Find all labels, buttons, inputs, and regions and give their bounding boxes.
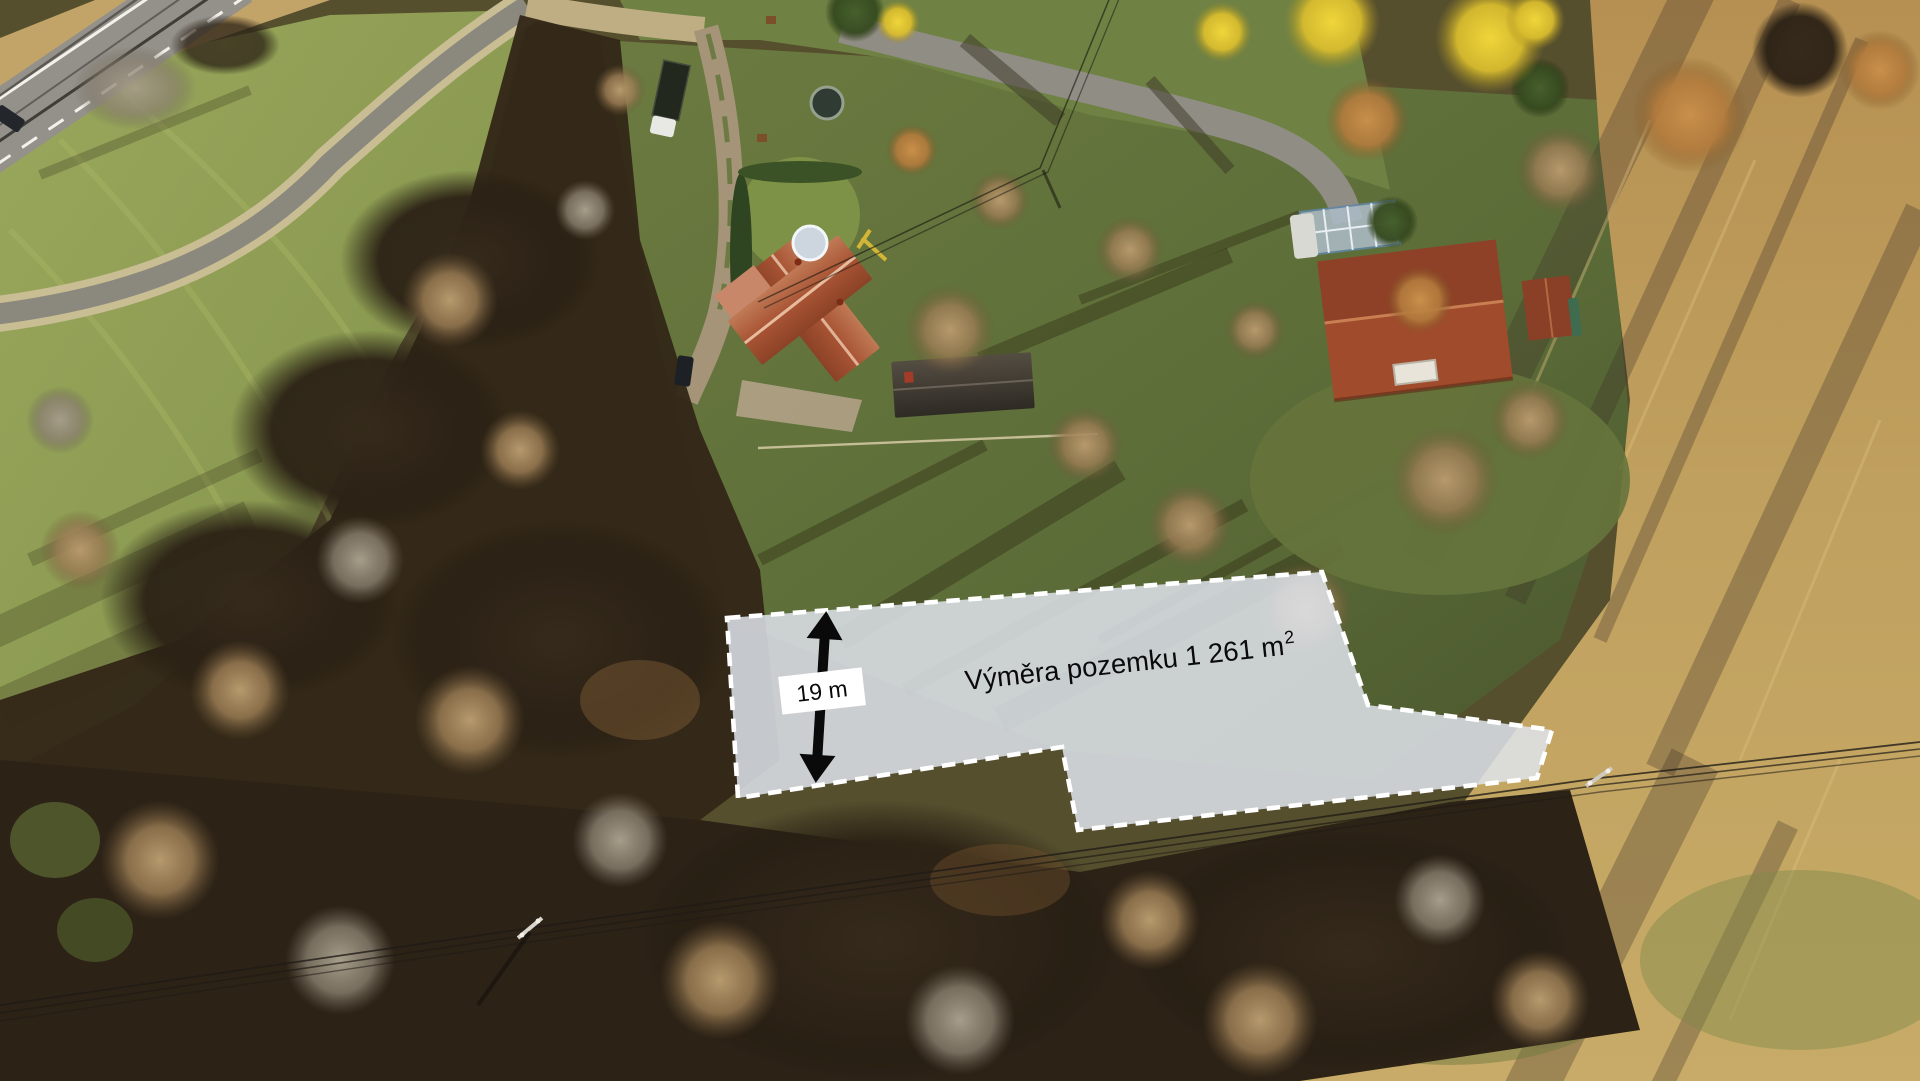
parcel-overlay: 19 m Výměra pozemku 1 261 m2 xyxy=(0,0,1920,1081)
annotated-aerial-photo: 19 m Výměra pozemku 1 261 m2 xyxy=(0,0,1920,1081)
